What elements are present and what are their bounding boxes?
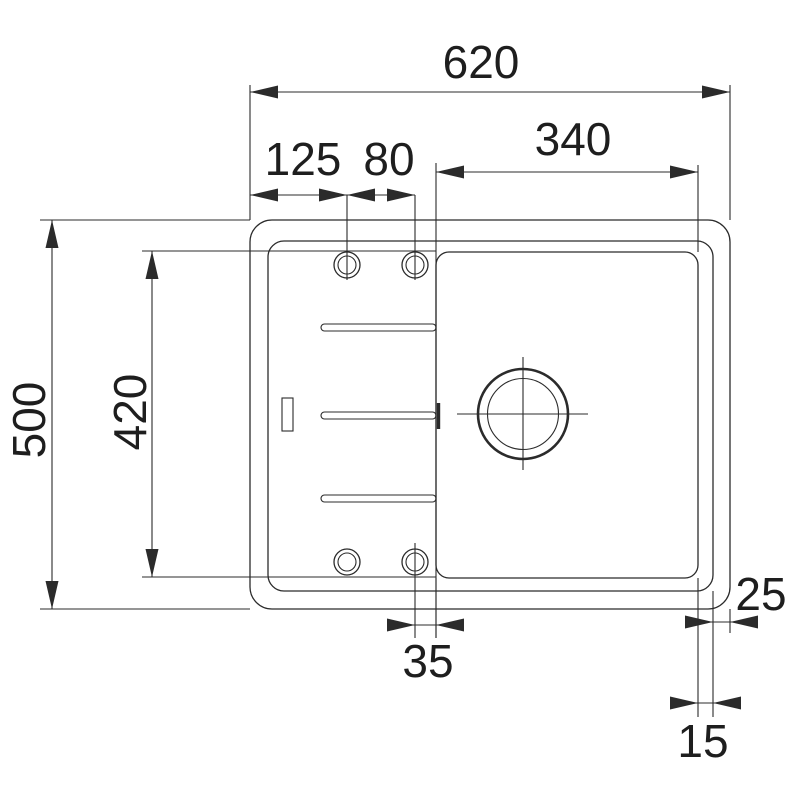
arrowhead-left: [250, 189, 278, 202]
dim-125-label: 125: [265, 133, 342, 185]
arrowhead-right: [702, 86, 730, 99]
arrowhead-right-tip: [685, 616, 713, 629]
dim-25-label: 25: [735, 568, 786, 620]
arrowhead-left: [250, 86, 278, 99]
tap-hole-bottom-left-inner: [338, 553, 356, 571]
arrowhead-right: [670, 166, 698, 179]
dim-tap-holes: 125 80: [250, 133, 415, 280]
dim-35-label: 35: [402, 635, 453, 687]
sink-rim-edge: [268, 241, 713, 591]
dim-hole-to-bowl: 35: [387, 543, 464, 687]
arrowhead-right: [387, 189, 415, 202]
arrowhead-bottom: [46, 581, 59, 609]
dim-bowl-to-rim: 15: [670, 578, 741, 767]
arrowhead-bottom: [146, 549, 159, 577]
drainer-groove-top: [321, 324, 436, 331]
arrowhead-right: [319, 189, 347, 202]
arrowhead-left: [347, 189, 375, 202]
drain-outlet: [457, 357, 588, 470]
drainer-groove-middle: [321, 412, 436, 419]
dim-500-label: 500: [3, 382, 55, 459]
arrowhead-left: [436, 166, 464, 179]
dim-80-label: 80: [363, 133, 414, 185]
dim-inner-depth: 420: [104, 251, 159, 577]
dim-15-label: 15: [677, 715, 728, 767]
dim-bowl-width: 340: [436, 113, 698, 252]
overflow-slot: [282, 398, 293, 431]
drainer-groove-bottom: [321, 495, 436, 502]
tap-holes: [334, 252, 428, 575]
sink-technical-drawing: 620 340 125 80 500 420: [0, 0, 800, 800]
dim-420-label: 420: [104, 374, 156, 451]
arrowhead-top: [146, 251, 159, 279]
drawing-canvas: 620 340 125 80 500 420: [0, 0, 800, 800]
arrowhead-left-tip: [713, 697, 741, 710]
dim-620-label: 620: [443, 36, 520, 88]
drainer-board: [142, 251, 439, 577]
arrowhead-right-tip: [670, 697, 698, 710]
dim-340-label: 340: [535, 113, 612, 165]
arrowhead-top: [46, 220, 59, 248]
arrowhead-left-tip: [436, 619, 464, 632]
arrowhead-right-tip: [387, 619, 415, 632]
